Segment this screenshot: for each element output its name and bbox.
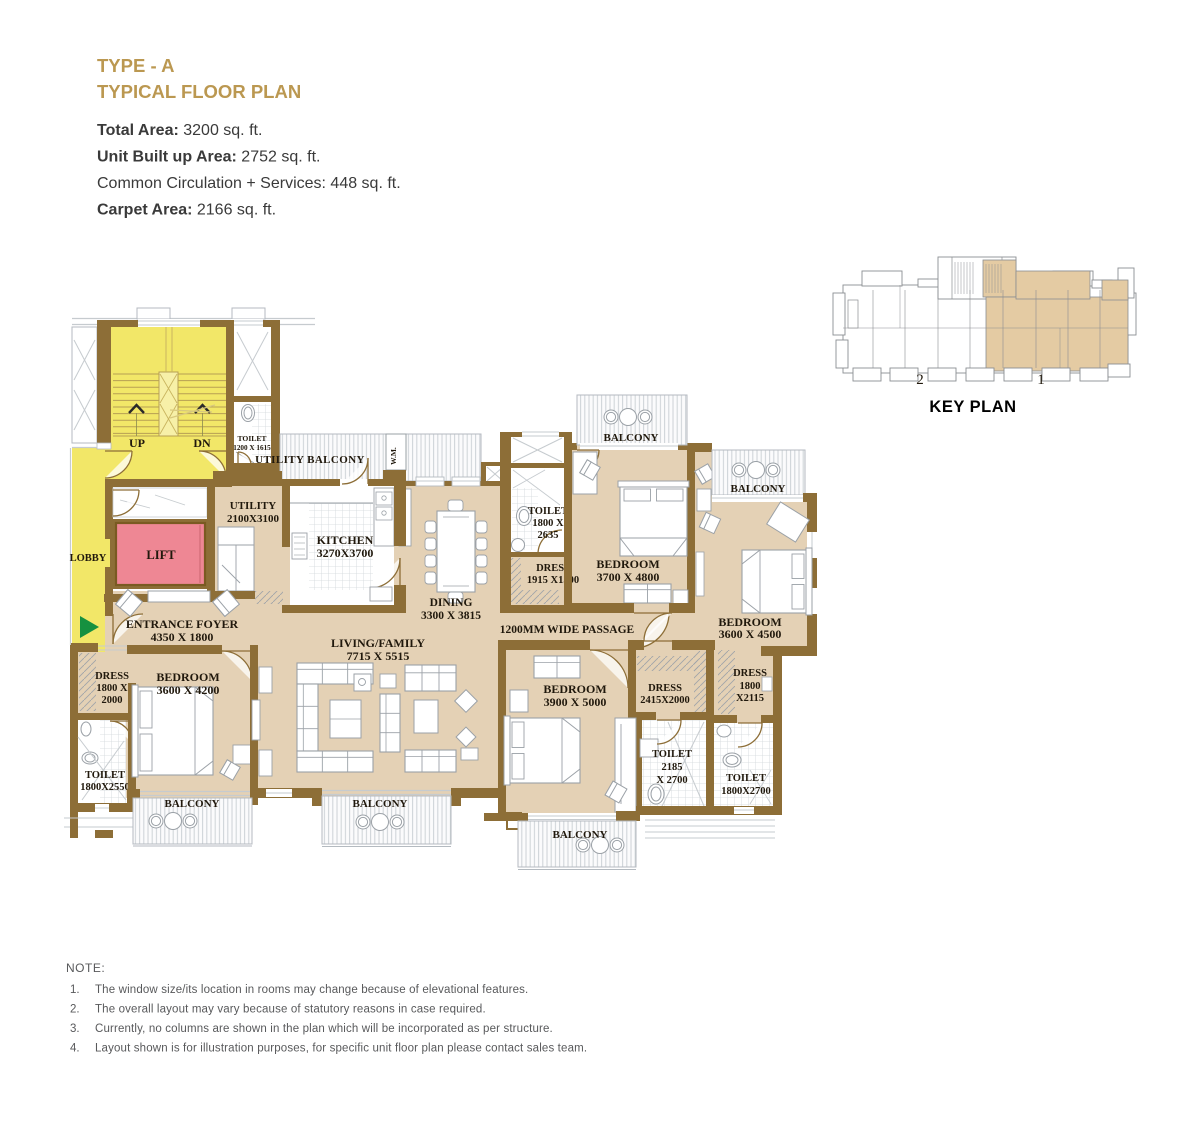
- svg-text:3900 X 5000: 3900 X 5000: [544, 695, 607, 709]
- svg-text:TOILET: TOILET: [85, 770, 125, 781]
- svg-text:LIVING/FAMILY: LIVING/FAMILY: [331, 636, 425, 650]
- svg-text:1800 X: 1800 X: [532, 518, 564, 529]
- svg-text:NOTE:: NOTE:: [66, 961, 105, 975]
- svg-text:4350 X 1800: 4350 X 1800: [151, 630, 214, 644]
- svg-text:BEDROOM: BEDROOM: [543, 682, 606, 696]
- svg-text:7715 X 5515: 7715 X 5515: [347, 649, 410, 663]
- svg-text:TYPICAL FLOOR PLAN: TYPICAL FLOOR PLAN: [97, 81, 301, 102]
- svg-text:1800X2550: 1800X2550: [80, 782, 130, 793]
- svg-text:BEDROOM: BEDROOM: [156, 670, 219, 684]
- svg-text:LIFT: LIFT: [146, 548, 176, 562]
- svg-text:2185: 2185: [662, 762, 683, 773]
- svg-text:1200 X 1615: 1200 X 1615: [233, 444, 271, 452]
- svg-text:BALCONY: BALCONY: [730, 483, 785, 495]
- svg-text:1800X2700: 1800X2700: [721, 786, 771, 797]
- svg-text:Unit Built up Area: 2752 sq. f: Unit Built up Area: 2752 sq. ft.: [97, 149, 320, 166]
- svg-text:TOILET: TOILET: [726, 773, 766, 784]
- svg-text:BALCONY: BALCONY: [164, 798, 219, 810]
- svg-text:BALCONY: BALCONY: [552, 829, 607, 841]
- svg-text:The overall layout may vary be: The overall layout may vary because of s…: [95, 1004, 486, 1016]
- svg-text:Currently, no columns are show: Currently, no columns are shown in the p…: [95, 1023, 553, 1035]
- svg-text:3600 X 4200: 3600 X 4200: [157, 683, 220, 697]
- svg-text:UP: UP: [129, 436, 145, 450]
- svg-text:X 2700: X 2700: [656, 775, 687, 786]
- svg-text:DRESS: DRESS: [648, 683, 682, 694]
- svg-text:TOILET: TOILET: [238, 434, 267, 443]
- svg-text:TYPE - A: TYPE - A: [97, 55, 174, 76]
- svg-text:The window size/its location i: The window size/its location in rooms ma…: [95, 984, 528, 996]
- svg-text:3600 X 4500: 3600 X 4500: [719, 627, 782, 641]
- svg-text:2000: 2000: [102, 695, 123, 706]
- svg-text:3270X3700: 3270X3700: [317, 546, 374, 560]
- svg-text:KITCHEN: KITCHEN: [317, 533, 374, 547]
- svg-text:KEY PLAN: KEY PLAN: [929, 398, 1016, 416]
- svg-text:1.: 1.: [70, 984, 80, 996]
- svg-text:UTILITY BALCONY: UTILITY BALCONY: [255, 454, 365, 466]
- svg-text:1: 1: [1037, 372, 1045, 388]
- svg-text:2415X2000: 2415X2000: [640, 695, 690, 706]
- svg-text:DN: DN: [193, 436, 211, 450]
- svg-text:LOBBY: LOBBY: [70, 553, 107, 564]
- svg-text:3.: 3.: [70, 1023, 80, 1035]
- svg-text:2635: 2635: [538, 530, 559, 541]
- svg-text:3700 X 4800: 3700 X 4800: [597, 570, 660, 584]
- svg-text:4.: 4.: [70, 1043, 80, 1055]
- svg-text:BEDROOM: BEDROOM: [596, 557, 659, 571]
- svg-text:2.: 2.: [70, 1004, 80, 1016]
- svg-text:X2115: X2115: [736, 693, 764, 704]
- svg-text:1800: 1800: [740, 681, 761, 692]
- svg-text:3300 X 3815: 3300 X 3815: [421, 610, 481, 622]
- svg-text:Common Circulation + Services:: Common Circulation + Services: 448 sq. f…: [97, 175, 401, 192]
- svg-text:UTILITY: UTILITY: [230, 500, 277, 512]
- svg-text:W.M.: W.M.: [389, 447, 398, 465]
- svg-text:TOILET: TOILET: [652, 749, 692, 760]
- svg-text:Layout shown is for illustrati: Layout shown is for illustration purpose…: [95, 1043, 587, 1055]
- svg-text:BALCONY: BALCONY: [352, 798, 407, 810]
- svg-text:DRESS: DRESS: [95, 671, 129, 682]
- svg-text:Carpet Area: 2166 sq. ft.: Carpet Area: 2166 sq. ft.: [97, 202, 276, 219]
- svg-text:DINING: DINING: [430, 597, 473, 609]
- svg-text:1800 X: 1800 X: [96, 683, 128, 694]
- svg-text:ENTRANCE FOYER: ENTRANCE FOYER: [126, 617, 239, 631]
- svg-text:BALCONY: BALCONY: [603, 432, 658, 444]
- svg-text:2: 2: [916, 372, 924, 388]
- svg-text:Total Area: 3200 sq. ft.: Total Area: 3200 sq. ft.: [97, 122, 262, 139]
- svg-text:TOILET: TOILET: [528, 506, 568, 517]
- svg-text:2100X3100: 2100X3100: [227, 513, 279, 525]
- svg-text:1200MM WIDE PASSAGE: 1200MM WIDE PASSAGE: [500, 624, 635, 636]
